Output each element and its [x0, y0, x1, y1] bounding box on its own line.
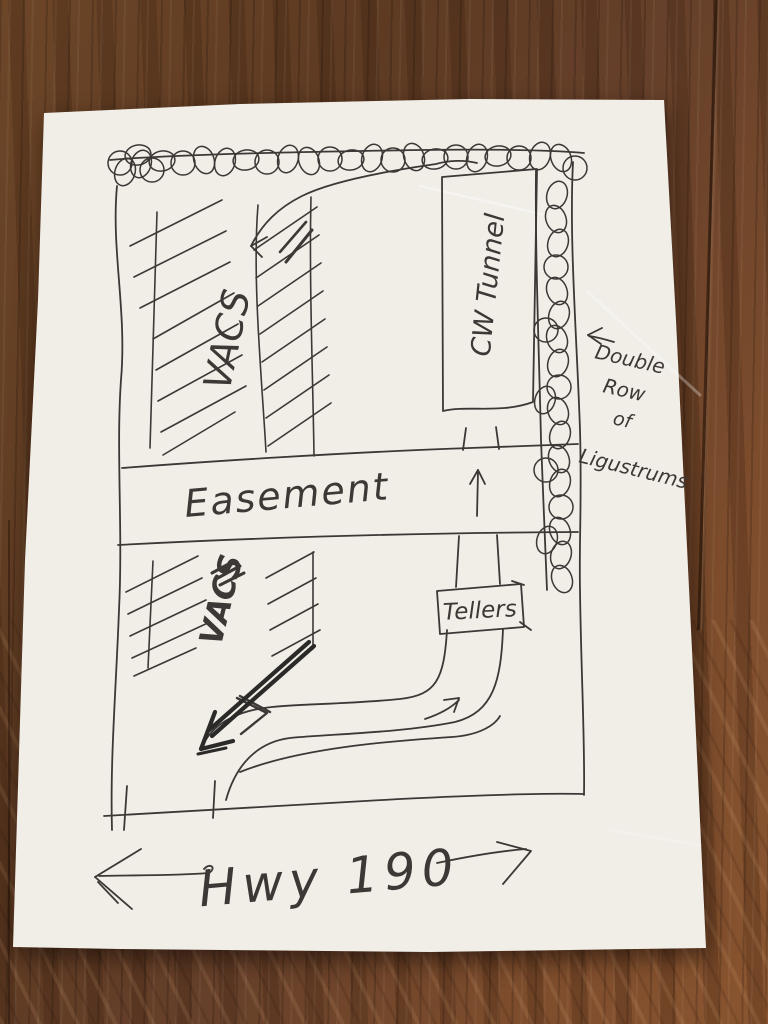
sketch-drawing: VACS CW Tunnel Easement VACS Tellers Hwy…: [0, 0, 768, 1024]
photo-of-hand-drawn-site-sketch: VACS CW Tunnel Easement VACS Tellers Hwy…: [0, 0, 768, 1024]
paper-sheet: [13, 99, 706, 952]
tellers-label: Tellers: [442, 596, 517, 626]
